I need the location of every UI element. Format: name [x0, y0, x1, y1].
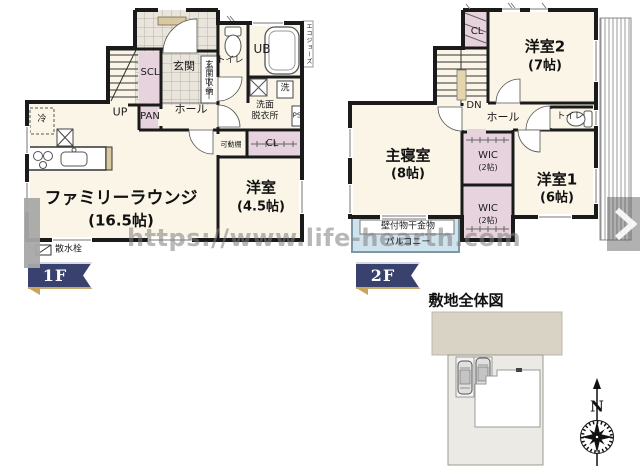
floorplan-page: https://www.life-hearth.com ファミリーラウンジ (1… — [0, 0, 640, 473]
site-plan — [432, 312, 614, 466]
room-size-yoshitsu2: (7帖) — [528, 60, 562, 73]
label-pan: PAN — [140, 112, 160, 122]
label-laundry: 洗 — [280, 85, 289, 94]
floor-hatch — [57, 129, 73, 146]
label-closet-2f: CL — [471, 27, 484, 37]
room-label-master: 主寝室 — [385, 149, 430, 164]
label-hall-1f: ホール — [175, 104, 208, 115]
room-label-family-lounge: ファミリーラウンジ — [45, 191, 198, 208]
label-stairs-down: DN — [466, 101, 481, 111]
washbasin-icon — [250, 79, 267, 96]
label-wic-lower: WIC — [478, 204, 498, 214]
room-label-yoshitsu1: 洋室1 — [537, 173, 577, 188]
size-wic-upper: (2帖) — [478, 164, 497, 172]
label-washroom-line2: 脱衣所 — [251, 113, 278, 122]
label-stairs-up: UP — [113, 107, 128, 118]
floor-badge-2f: 2F — [356, 262, 420, 289]
label-closet-1f: CL — [266, 139, 279, 149]
label-scl: SCL — [141, 68, 160, 78]
road — [432, 312, 562, 355]
size-wic-lower: (2帖) — [478, 217, 497, 225]
label-toilet-1f: トイレ — [216, 57, 243, 66]
room-size-yoshitsu-1f: (4.5帖) — [237, 201, 285, 214]
site-plan-title: 敷地全体図 — [428, 294, 503, 309]
carousel-prev-overlay[interactable] — [24, 198, 40, 268]
label-pipe-space: PS — [293, 113, 302, 120]
toilet-icon — [225, 27, 241, 57]
room-size-family-lounge: (16.5帖) — [88, 214, 154, 229]
carousel-next-button[interactable] — [607, 197, 640, 251]
label-genkan-storage: 玄関収納 — [205, 60, 213, 96]
compass-north-label: N — [590, 400, 604, 415]
room-size-master: (8帖) — [391, 168, 425, 181]
room-label-yoshitsu2: 洋室2 — [525, 40, 565, 55]
label-hall-2f: ホール — [487, 112, 520, 123]
label-fridge: 冷 — [37, 116, 46, 125]
watermark-url: https://www.life-hearth.com — [127, 224, 521, 252]
car-icon — [458, 361, 472, 394]
label-washroom-line1: 洗面 — [256, 102, 274, 111]
label-water-heater: エコジョーズ — [305, 23, 311, 65]
room-label-yoshitsu-1f: 洋室 — [246, 181, 276, 196]
label-wic-upper: WIC — [478, 151, 498, 161]
compass-rose — [581, 378, 614, 466]
chevron-right-icon — [611, 202, 637, 246]
floorplan-2f — [347, 3, 631, 252]
kitchen-counter — [28, 147, 112, 170]
label-toilet-2f: トイレ — [556, 113, 583, 122]
label-unit-bath: UB — [253, 43, 270, 55]
vent-tick — [227, 16, 234, 21]
room-size-yoshitsu1: (6帖) — [540, 192, 574, 205]
label-sprinkler: 散水栓 — [55, 246, 82, 255]
entry-mark — [516, 368, 522, 372]
label-genkan: 玄関 — [173, 61, 195, 72]
label-laundry-hanger: 壁付物干金物 — [381, 223, 435, 232]
label-balcony: バルコニー — [386, 239, 431, 248]
label-movable-shelf: 可動棚 — [221, 142, 242, 149]
